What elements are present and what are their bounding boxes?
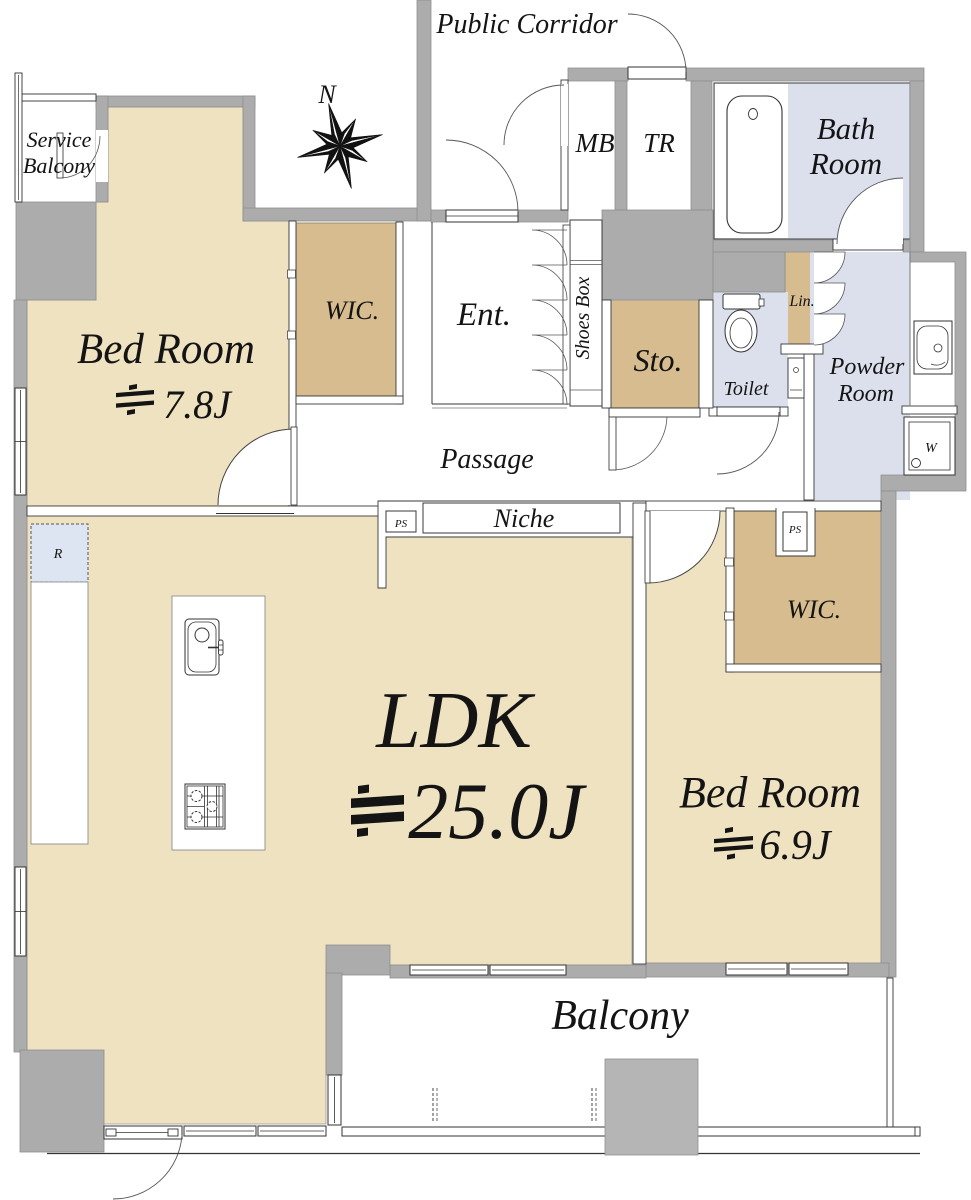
- svg-text:MB: MB: [575, 128, 615, 158]
- svg-text:Balcony: Balcony: [23, 153, 95, 178]
- svg-text:PS: PS: [788, 524, 802, 536]
- svg-text:Powder: Powder: [829, 354, 905, 380]
- svg-text:7.8J: 7.8J: [163, 382, 233, 427]
- svg-text:Niche: Niche: [493, 504, 555, 533]
- svg-text:Toilet: Toilet: [724, 378, 769, 400]
- svg-text:Passage: Passage: [439, 444, 533, 475]
- svg-text:W: W: [925, 441, 938, 456]
- svg-text:Lin.: Lin.: [788, 293, 814, 310]
- svg-text:PS: PS: [394, 518, 408, 530]
- svg-text:WIC.: WIC.: [325, 296, 379, 325]
- svg-text:Public Corridor: Public Corridor: [435, 9, 617, 40]
- svg-text:Balcony: Balcony: [551, 993, 689, 1039]
- svg-text:TR: TR: [643, 128, 675, 158]
- svg-text:N: N: [317, 80, 337, 109]
- svg-text:Service: Service: [27, 127, 92, 152]
- svg-text:Shoes Box: Shoes Box: [572, 277, 594, 360]
- svg-text:Room: Room: [837, 381, 894, 407]
- svg-text:Ent.: Ent.: [456, 297, 511, 333]
- svg-text:LDK: LDK: [375, 677, 535, 765]
- svg-text:Bed Room: Bed Room: [77, 326, 255, 373]
- svg-text:R: R: [53, 547, 63, 562]
- svg-text:WIC.: WIC.: [787, 595, 841, 624]
- svg-text:Room: Room: [809, 146, 882, 181]
- svg-text:Bed Room: Bed Room: [679, 768, 861, 817]
- svg-text:6.9J: 6.9J: [759, 823, 833, 869]
- svg-text:Bath: Bath: [817, 111, 876, 146]
- svg-text:25.0J: 25.0J: [408, 768, 587, 856]
- svg-text:Sto.: Sto.: [634, 342, 683, 378]
